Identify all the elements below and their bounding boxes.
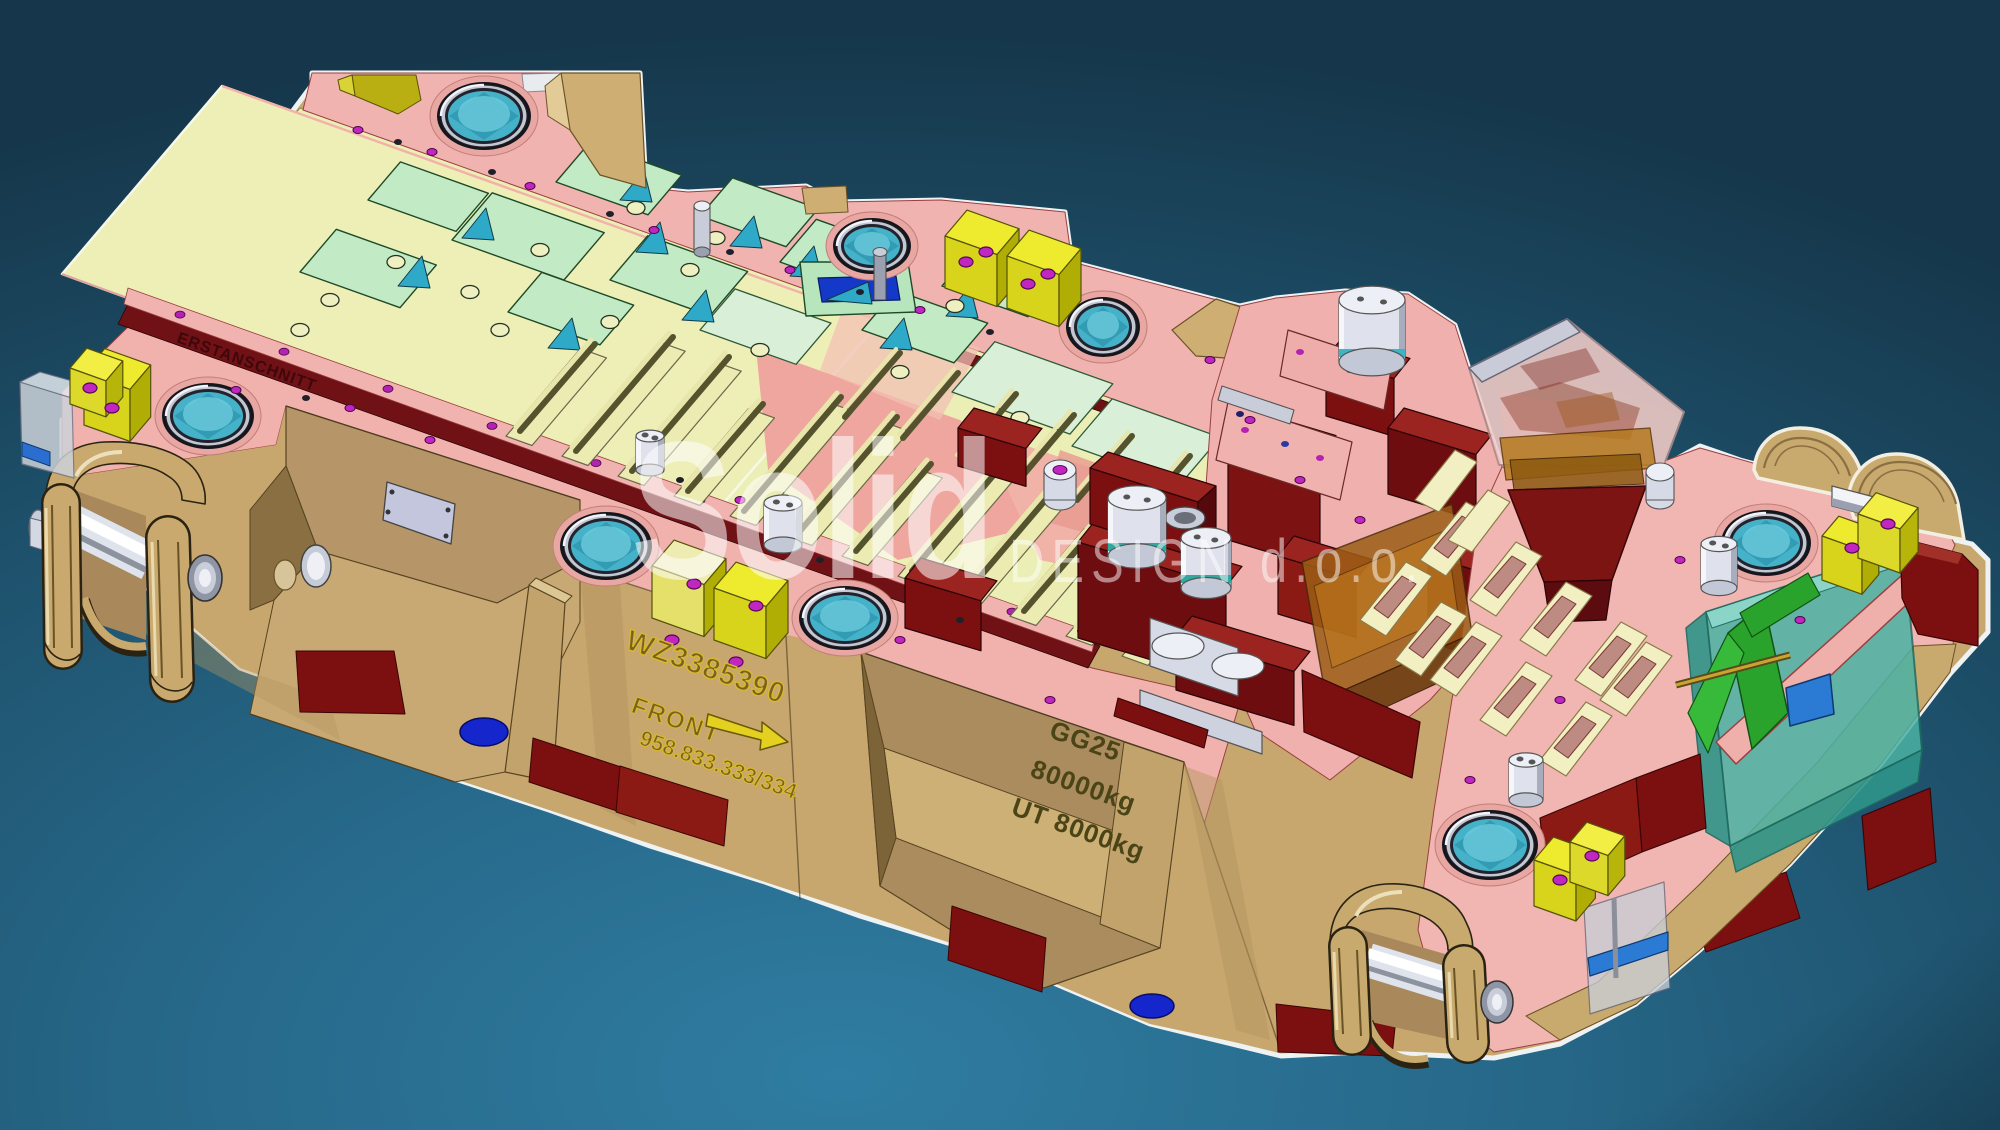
svg-text:DESIGN d.o.o.: DESIGN d.o.o. — [1009, 527, 1425, 595]
svg-text:Solid: Solid — [631, 402, 993, 621]
